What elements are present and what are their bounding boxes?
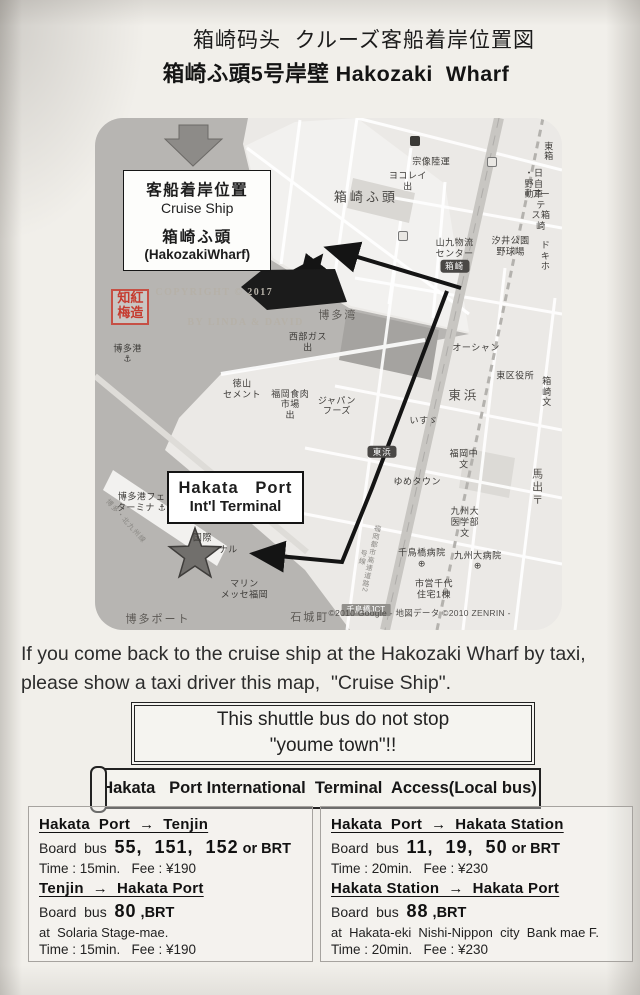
time-fee: Time : 15min. Fee : ¥190 bbox=[39, 861, 302, 876]
bus-suffix: or BRT bbox=[239, 841, 291, 857]
bus-suffix: ,BRT bbox=[429, 905, 467, 921]
board-line: Board bus 11, 19, 50 or BRT bbox=[331, 837, 622, 858]
board-line: Board bus 80 ,BRT bbox=[39, 901, 302, 922]
map-label: 九州大 医学部 文 bbox=[451, 507, 480, 539]
shuttle-warning-inner: This shuttle bus do not stop "youme town… bbox=[134, 705, 532, 762]
map-label: 石城町 bbox=[290, 611, 329, 624]
copyright-text: COPYRIGHT © 2017 BY LINDA & DAVID bbox=[155, 285, 304, 330]
callout-line: Hakata Port bbox=[169, 479, 302, 498]
map-label: 福岡食肉 市場 出 bbox=[271, 389, 309, 421]
title-line2: 箱崎ふ頭5号岸壁 Hakozaki Wharf bbox=[16, 57, 640, 88]
time-fee: Time : 15min. Fee : ¥190 bbox=[39, 942, 302, 957]
cruise-ship-callout: 客船着岸位置 Cruise Ship 箱崎ふ頭 (HakozakiWharf) bbox=[123, 170, 271, 271]
poi-icon bbox=[487, 157, 497, 167]
map-label: 徳山 セメント bbox=[223, 379, 261, 400]
bus-suffix: ,BRT bbox=[137, 905, 175, 921]
board-label: Board bus bbox=[331, 840, 399, 856]
map-label: いすゞ bbox=[410, 416, 439, 427]
map-label: マリン メッセ福岡 bbox=[221, 578, 269, 599]
taxi-note-line2: please show a taxi driver this map, "Cru… bbox=[21, 669, 633, 698]
time-fee: Time : 20min. Fee : ¥230 bbox=[331, 942, 622, 957]
map-label: 宗像陸運 bbox=[412, 157, 450, 168]
taxi-note: If you come back to the cruise ship at t… bbox=[21, 640, 633, 698]
board-label: Board bus bbox=[331, 904, 399, 920]
callout-line: Cruise Ship bbox=[126, 200, 268, 216]
map-label: 博多ポート bbox=[126, 613, 191, 626]
factory-icon bbox=[410, 136, 420, 146]
map-label: オーシャン bbox=[452, 343, 499, 354]
map-label: 東箱 bbox=[543, 142, 554, 161]
map-label: 西部ガス 出 bbox=[289, 332, 327, 353]
callout-line: (HakozakiWharf) bbox=[126, 247, 268, 262]
red-seal: 知紅 梅造 bbox=[111, 289, 149, 325]
map-label: 福岡中 文 bbox=[450, 448, 479, 469]
copyright-line2: BY LINDA & DAVID bbox=[187, 317, 304, 328]
bus-suffix: or BRT bbox=[508, 841, 560, 857]
board-label: Board bus bbox=[39, 840, 107, 856]
map-label: 箱崎 文 bbox=[540, 376, 555, 408]
route-header: Hakata Port → Tenjin bbox=[39, 816, 302, 833]
copyright-stamp: 知紅 梅造 COPYRIGHT © 2017 BY LINDA & DAVID bbox=[111, 285, 304, 330]
access-header-title: Hakata Port International Terminal Acces… bbox=[99, 770, 539, 806]
time-fee: Time : 20min. Fee : ¥230 bbox=[331, 861, 622, 876]
callout-line: 箱崎ふ頭 bbox=[126, 225, 268, 247]
board-line: Board bus 55, 151, 152 or BRT bbox=[39, 837, 302, 858]
hakata-port-terminal-callout: Hakata Port Int'l Terminal bbox=[167, 471, 304, 524]
title-line1: 箱崎码头 クルーズ客船着岸位置図 bbox=[44, 24, 640, 54]
station-badge-hakozaki: 箱崎 bbox=[440, 260, 469, 273]
route-header: Hakata Port → Hakata Station bbox=[331, 816, 622, 833]
map-label: ゆめタウン bbox=[393, 476, 441, 487]
bus-numbers: 55, 151, 152 bbox=[115, 837, 239, 857]
map-label: ヨコレイ 出 bbox=[389, 170, 427, 191]
map-label: 博多港フェ ターミナ ⚓ bbox=[117, 491, 167, 512]
copyright-line1: COPYRIGHT © 2017 bbox=[155, 287, 273, 298]
bus-numbers: 11, 19, 50 bbox=[407, 837, 508, 857]
map-label: アーテ ス箱崎 bbox=[530, 189, 551, 231]
board-line: Board bus 88 ,BRT bbox=[331, 901, 622, 922]
route-header: Tenjin → Hakata Port bbox=[39, 880, 302, 897]
station-badge-higashihama: 東浜 bbox=[368, 446, 397, 459]
map-label: 千鳥橋病院 ⊕ bbox=[398, 548, 446, 569]
map-label: 博多港 ⚓ bbox=[113, 343, 142, 364]
map-label: 山九物流 センター bbox=[436, 237, 474, 258]
bus-numbers: 88 bbox=[407, 901, 429, 921]
map-label: 市営千代 住宅1棟 bbox=[415, 578, 453, 599]
taxi-note-line1: If you come back to the cruise ship at t… bbox=[21, 640, 633, 669]
shuttle-line2: "youme town"!! bbox=[135, 733, 531, 759]
callout-line: Int'l Terminal bbox=[169, 498, 302, 515]
shuttle-line1: This shuttle bus do not stop bbox=[135, 707, 531, 733]
map-label: 汐井公園 野球場 bbox=[492, 235, 530, 256]
boarding-note: at Hakata-eki Nishi-Nippon city Bank mae… bbox=[331, 925, 622, 940]
shuttle-warning-box: This shuttle bus do not stop "youme town… bbox=[131, 702, 535, 765]
scanned-flyer-page: 箱崎码头 クルーズ客船着岸位置図 箱崎ふ頭5号岸壁 Hakozaki Wharf bbox=[0, 0, 640, 995]
map-label: 東区役所 bbox=[496, 371, 534, 382]
map-label: 九州大病院 ⊕ bbox=[454, 550, 502, 571]
route-header: Hakata Station → Hakata Port bbox=[331, 880, 622, 897]
map-label: ナル bbox=[219, 544, 238, 555]
bus-panel-hakata-station: Hakata Port → Hakata Station Board bus 1… bbox=[320, 806, 633, 962]
callout-line: 客船着岸位置 bbox=[126, 178, 268, 200]
map-label: 国際 bbox=[193, 533, 212, 544]
map-label: 博多湾 bbox=[318, 310, 357, 323]
map-label: ジャパン フーズ bbox=[318, 395, 356, 416]
bus-panel-tenjin: Hakata Port → Tenjin Board bus 55, 151, … bbox=[28, 806, 313, 962]
map-credit: ©2010 Google - 地図データ ©2010 ZENRIN - bbox=[329, 607, 563, 619]
hakozaki-wharf-map: 箱崎ふ頭 宗像陸運 ヨコレイ 出 ・日野自動車 アーテ ス箱崎 山九物流 センタ… bbox=[95, 118, 562, 630]
map-label: ド キホ bbox=[537, 240, 553, 272]
boarding-note: at Solaria Stage-mae. bbox=[39, 925, 302, 940]
access-header-box: Hakata Port International Terminal Acces… bbox=[97, 768, 541, 809]
map-label: 馬出 〒 bbox=[527, 468, 550, 507]
board-label: Board bus bbox=[39, 904, 107, 920]
bus-numbers: 80 bbox=[115, 901, 137, 921]
poi-icon bbox=[398, 231, 408, 241]
map-label: 東浜 bbox=[448, 389, 479, 404]
